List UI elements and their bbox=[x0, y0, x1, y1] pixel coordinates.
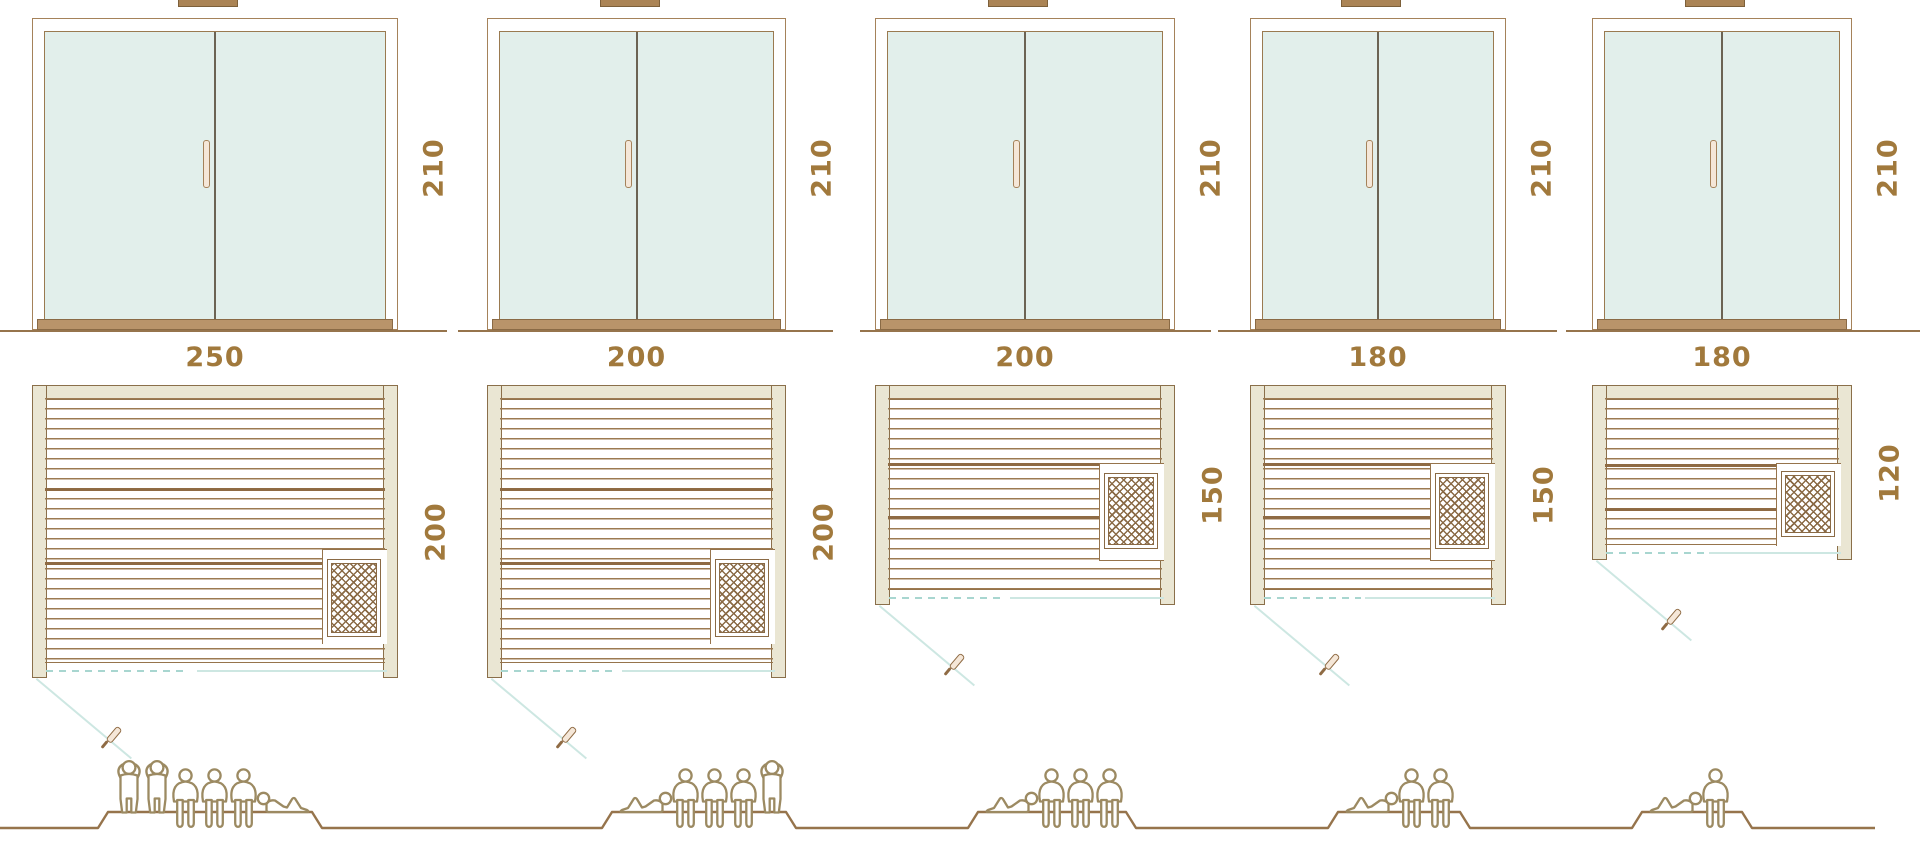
person-sitting-icon bbox=[1068, 769, 1092, 826]
heater-area bbox=[1776, 463, 1841, 546]
heater-icon bbox=[1781, 471, 1835, 537]
person-sitting-icon bbox=[1399, 769, 1423, 826]
door-elevation: 210 bbox=[1592, 0, 1852, 331]
person-lying-icon bbox=[987, 793, 1038, 812]
person-standing-icon bbox=[146, 761, 167, 812]
plan-front-line bbox=[1010, 597, 1164, 599]
glass-double-door bbox=[1262, 31, 1494, 324]
door-sill bbox=[492, 319, 781, 330]
door-sill bbox=[880, 319, 1170, 330]
person-sitting-icon bbox=[173, 769, 197, 826]
roof-vent-icon bbox=[1685, 0, 1745, 7]
ground-line bbox=[860, 330, 1211, 332]
height-dimension-label: 210 bbox=[1527, 138, 1558, 197]
door-handle-icon bbox=[1324, 653, 1341, 671]
roof-vent-icon bbox=[600, 0, 660, 7]
person-lying-icon bbox=[258, 793, 309, 812]
door-elevation: 210 bbox=[1250, 0, 1506, 331]
heater-area bbox=[1099, 463, 1164, 561]
door-elevation: 210 bbox=[32, 0, 398, 331]
heater-icon bbox=[1104, 473, 1158, 549]
person-sitting-icon bbox=[702, 769, 726, 826]
capacity-icons bbox=[987, 769, 1122, 826]
floor-plan: 120 bbox=[1592, 385, 1852, 560]
ground-line bbox=[0, 812, 1875, 828]
door-opening-dashed-line bbox=[501, 670, 615, 672]
capacity-icons bbox=[118, 761, 308, 827]
door-handle-icon bbox=[625, 140, 632, 188]
depth-dimension-label: 200 bbox=[421, 502, 452, 561]
glass-double-door bbox=[1604, 31, 1840, 324]
door-handle-icon bbox=[1366, 140, 1373, 188]
width-dimension-label: 200 bbox=[875, 342, 1175, 373]
width-dimension-label: 200 bbox=[487, 342, 786, 373]
roof-vent-icon bbox=[1341, 0, 1401, 7]
glass-double-door bbox=[499, 31, 774, 324]
depth-dimension-label: 120 bbox=[1875, 443, 1906, 502]
ground-line bbox=[458, 330, 833, 332]
width-dimension-label: 180 bbox=[1592, 342, 1852, 373]
door-opening-dashed-line bbox=[1264, 597, 1361, 599]
person-standing-icon bbox=[118, 761, 139, 812]
heater-hatch bbox=[1785, 475, 1831, 533]
door-handle-icon bbox=[1710, 140, 1717, 188]
sauna-unit-180x120: 210 180 120 bbox=[1592, 0, 1852, 856]
ground-line bbox=[1218, 330, 1557, 332]
person-lying-icon bbox=[621, 793, 672, 812]
width-dimension-label: 250 bbox=[32, 342, 398, 373]
depth-dimension-label: 150 bbox=[1529, 465, 1560, 524]
person-lying-icon bbox=[1347, 793, 1398, 812]
roof-vent-icon bbox=[178, 0, 238, 7]
capacity-band bbox=[0, 736, 1920, 856]
capacity-icons bbox=[1651, 769, 1728, 826]
door-center-joint bbox=[1024, 32, 1026, 323]
door-handle-icon bbox=[1013, 140, 1020, 188]
heater-icon bbox=[1435, 473, 1489, 549]
heater-area bbox=[322, 549, 387, 644]
floor-plan: 200 bbox=[487, 385, 786, 678]
person-sitting-icon bbox=[1039, 769, 1063, 826]
heater-hatch bbox=[1439, 477, 1485, 545]
person-sitting-icon bbox=[231, 769, 255, 826]
door-sill bbox=[1597, 319, 1847, 330]
roof-vent-icon bbox=[988, 0, 1048, 7]
ground-line bbox=[0, 330, 447, 332]
sauna-unit-200x200: 210 200 200 bbox=[487, 0, 786, 856]
heater-icon bbox=[327, 559, 381, 637]
plan-front-line bbox=[1709, 552, 1841, 554]
person-sitting-icon bbox=[202, 769, 226, 826]
sauna-unit-200x150: 210 200 150 bbox=[875, 0, 1175, 856]
door-swing-line bbox=[1254, 605, 1350, 686]
door-center-joint bbox=[1377, 32, 1379, 323]
depth-dimension-label: 200 bbox=[809, 502, 840, 561]
door-handle-icon bbox=[949, 653, 966, 671]
bench-edge-line bbox=[45, 488, 385, 491]
door-handle-icon bbox=[203, 140, 210, 188]
floor-plan: 150 bbox=[1250, 385, 1506, 605]
capacity-icons bbox=[1347, 769, 1453, 826]
height-dimension-label: 210 bbox=[1873, 138, 1904, 197]
person-sitting-icon bbox=[731, 769, 755, 826]
door-sill bbox=[1255, 319, 1501, 330]
door-opening-dashed-line bbox=[1606, 552, 1705, 554]
person-standing-icon bbox=[761, 761, 782, 812]
plan-front-line bbox=[1365, 597, 1495, 599]
door-elevation: 210 bbox=[487, 0, 786, 331]
width-dimension-label: 180 bbox=[1250, 342, 1506, 373]
glass-double-door bbox=[887, 31, 1163, 324]
door-elevation: 210 bbox=[875, 0, 1175, 331]
person-sitting-icon bbox=[1428, 769, 1452, 826]
floor-plan: 150 bbox=[875, 385, 1175, 605]
person-lying-icon bbox=[1651, 793, 1702, 812]
heater-icon bbox=[715, 559, 769, 637]
bench-edge-line bbox=[500, 488, 773, 491]
door-center-joint bbox=[636, 32, 638, 323]
sauna-dimensions-diagram: 210 250 200 bbox=[0, 0, 1920, 856]
height-dimension-label: 210 bbox=[807, 138, 838, 197]
door-opening-dashed-line bbox=[889, 597, 1003, 599]
heater-hatch bbox=[1108, 477, 1154, 545]
sauna-unit-250x200: 210 250 200 bbox=[32, 0, 398, 856]
plan-front-line bbox=[197, 670, 387, 672]
door-sill bbox=[37, 319, 393, 330]
heater-hatch bbox=[331, 563, 377, 633]
door-opening-dashed-line bbox=[46, 670, 185, 672]
depth-dimension-label: 150 bbox=[1198, 465, 1229, 524]
sauna-unit-180x150: 210 180 150 bbox=[1250, 0, 1506, 856]
height-dimension-label: 210 bbox=[419, 138, 450, 197]
heater-area bbox=[710, 549, 775, 644]
door-swing-line bbox=[1596, 560, 1692, 641]
door-swing-line bbox=[879, 605, 975, 686]
plan-front-line bbox=[622, 670, 775, 672]
height-dimension-label: 210 bbox=[1196, 138, 1227, 197]
ground-line bbox=[1566, 330, 1920, 332]
person-sitting-icon bbox=[673, 769, 697, 826]
capacity-icons bbox=[621, 761, 783, 827]
person-sitting-icon bbox=[1097, 769, 1121, 826]
door-center-joint bbox=[1721, 32, 1723, 323]
floor-plan: 200 bbox=[32, 385, 398, 678]
person-sitting-icon bbox=[1703, 769, 1727, 826]
door-center-joint bbox=[214, 32, 216, 323]
heater-hatch bbox=[719, 563, 765, 633]
door-handle-icon bbox=[1666, 608, 1683, 626]
glass-double-door bbox=[44, 31, 386, 324]
heater-area bbox=[1430, 463, 1495, 561]
